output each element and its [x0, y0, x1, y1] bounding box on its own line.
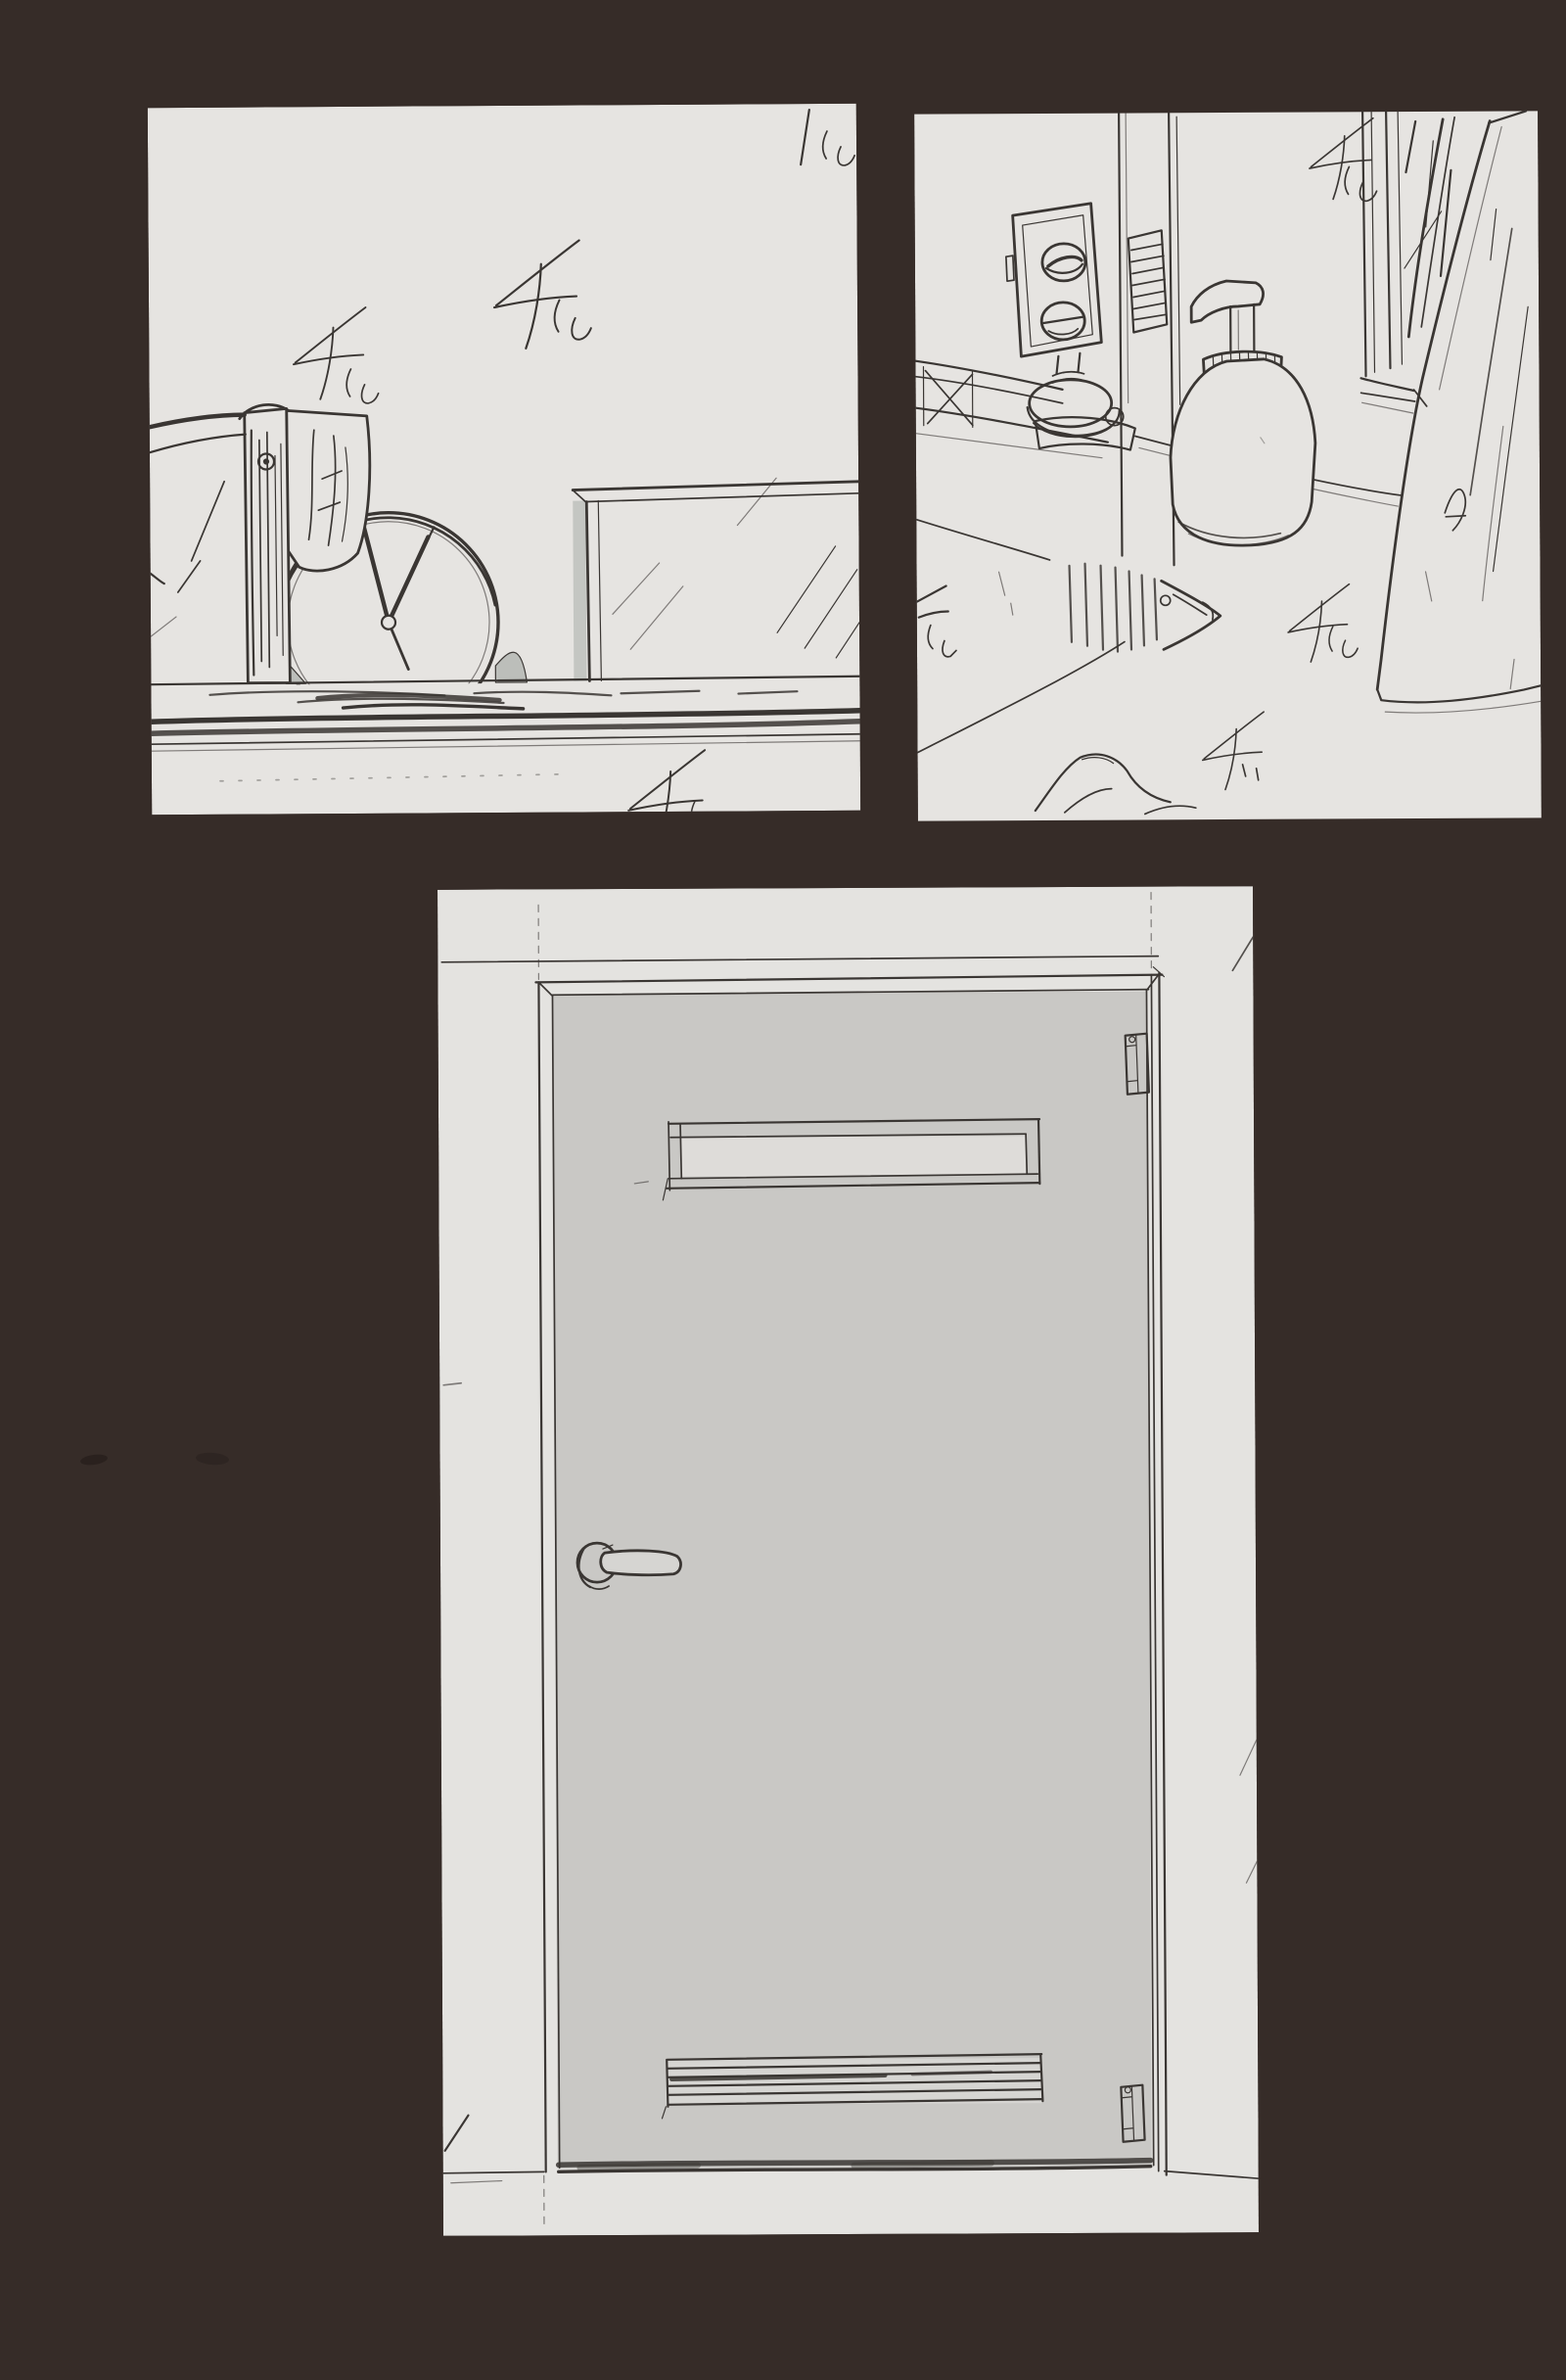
shower-mixer-sketch [1006, 204, 1102, 357]
ink-smudge [196, 1452, 230, 1466]
washstand-sketch [914, 110, 1542, 821]
scanned-sketch-page [0, 0, 1566, 2380]
ink-smudge [79, 1453, 108, 1467]
door-sketch [438, 886, 1259, 2236]
panel-clock-shelf [148, 104, 860, 815]
panel-door [438, 886, 1259, 2236]
panel-washstand [914, 110, 1542, 821]
clock-shelf-sketch [148, 104, 860, 815]
